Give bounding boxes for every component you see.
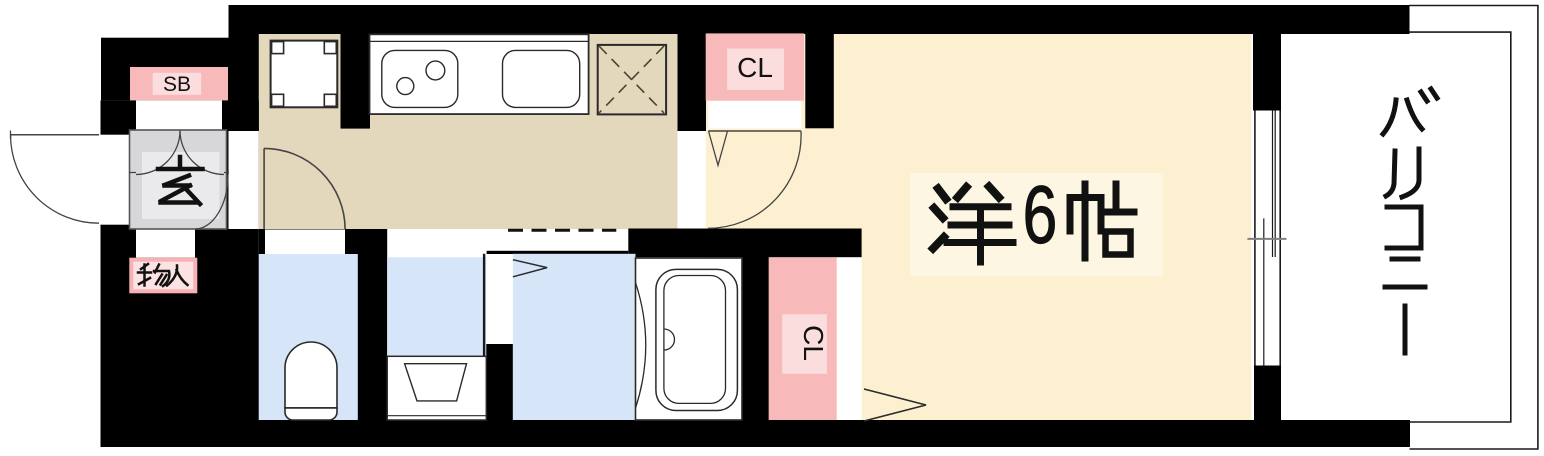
svg-text:CL: CL <box>737 52 773 83</box>
svg-text:SB: SB <box>163 73 191 96</box>
svg-text:6: 6 <box>1023 169 1058 260</box>
svg-text:CL: CL <box>798 325 829 361</box>
